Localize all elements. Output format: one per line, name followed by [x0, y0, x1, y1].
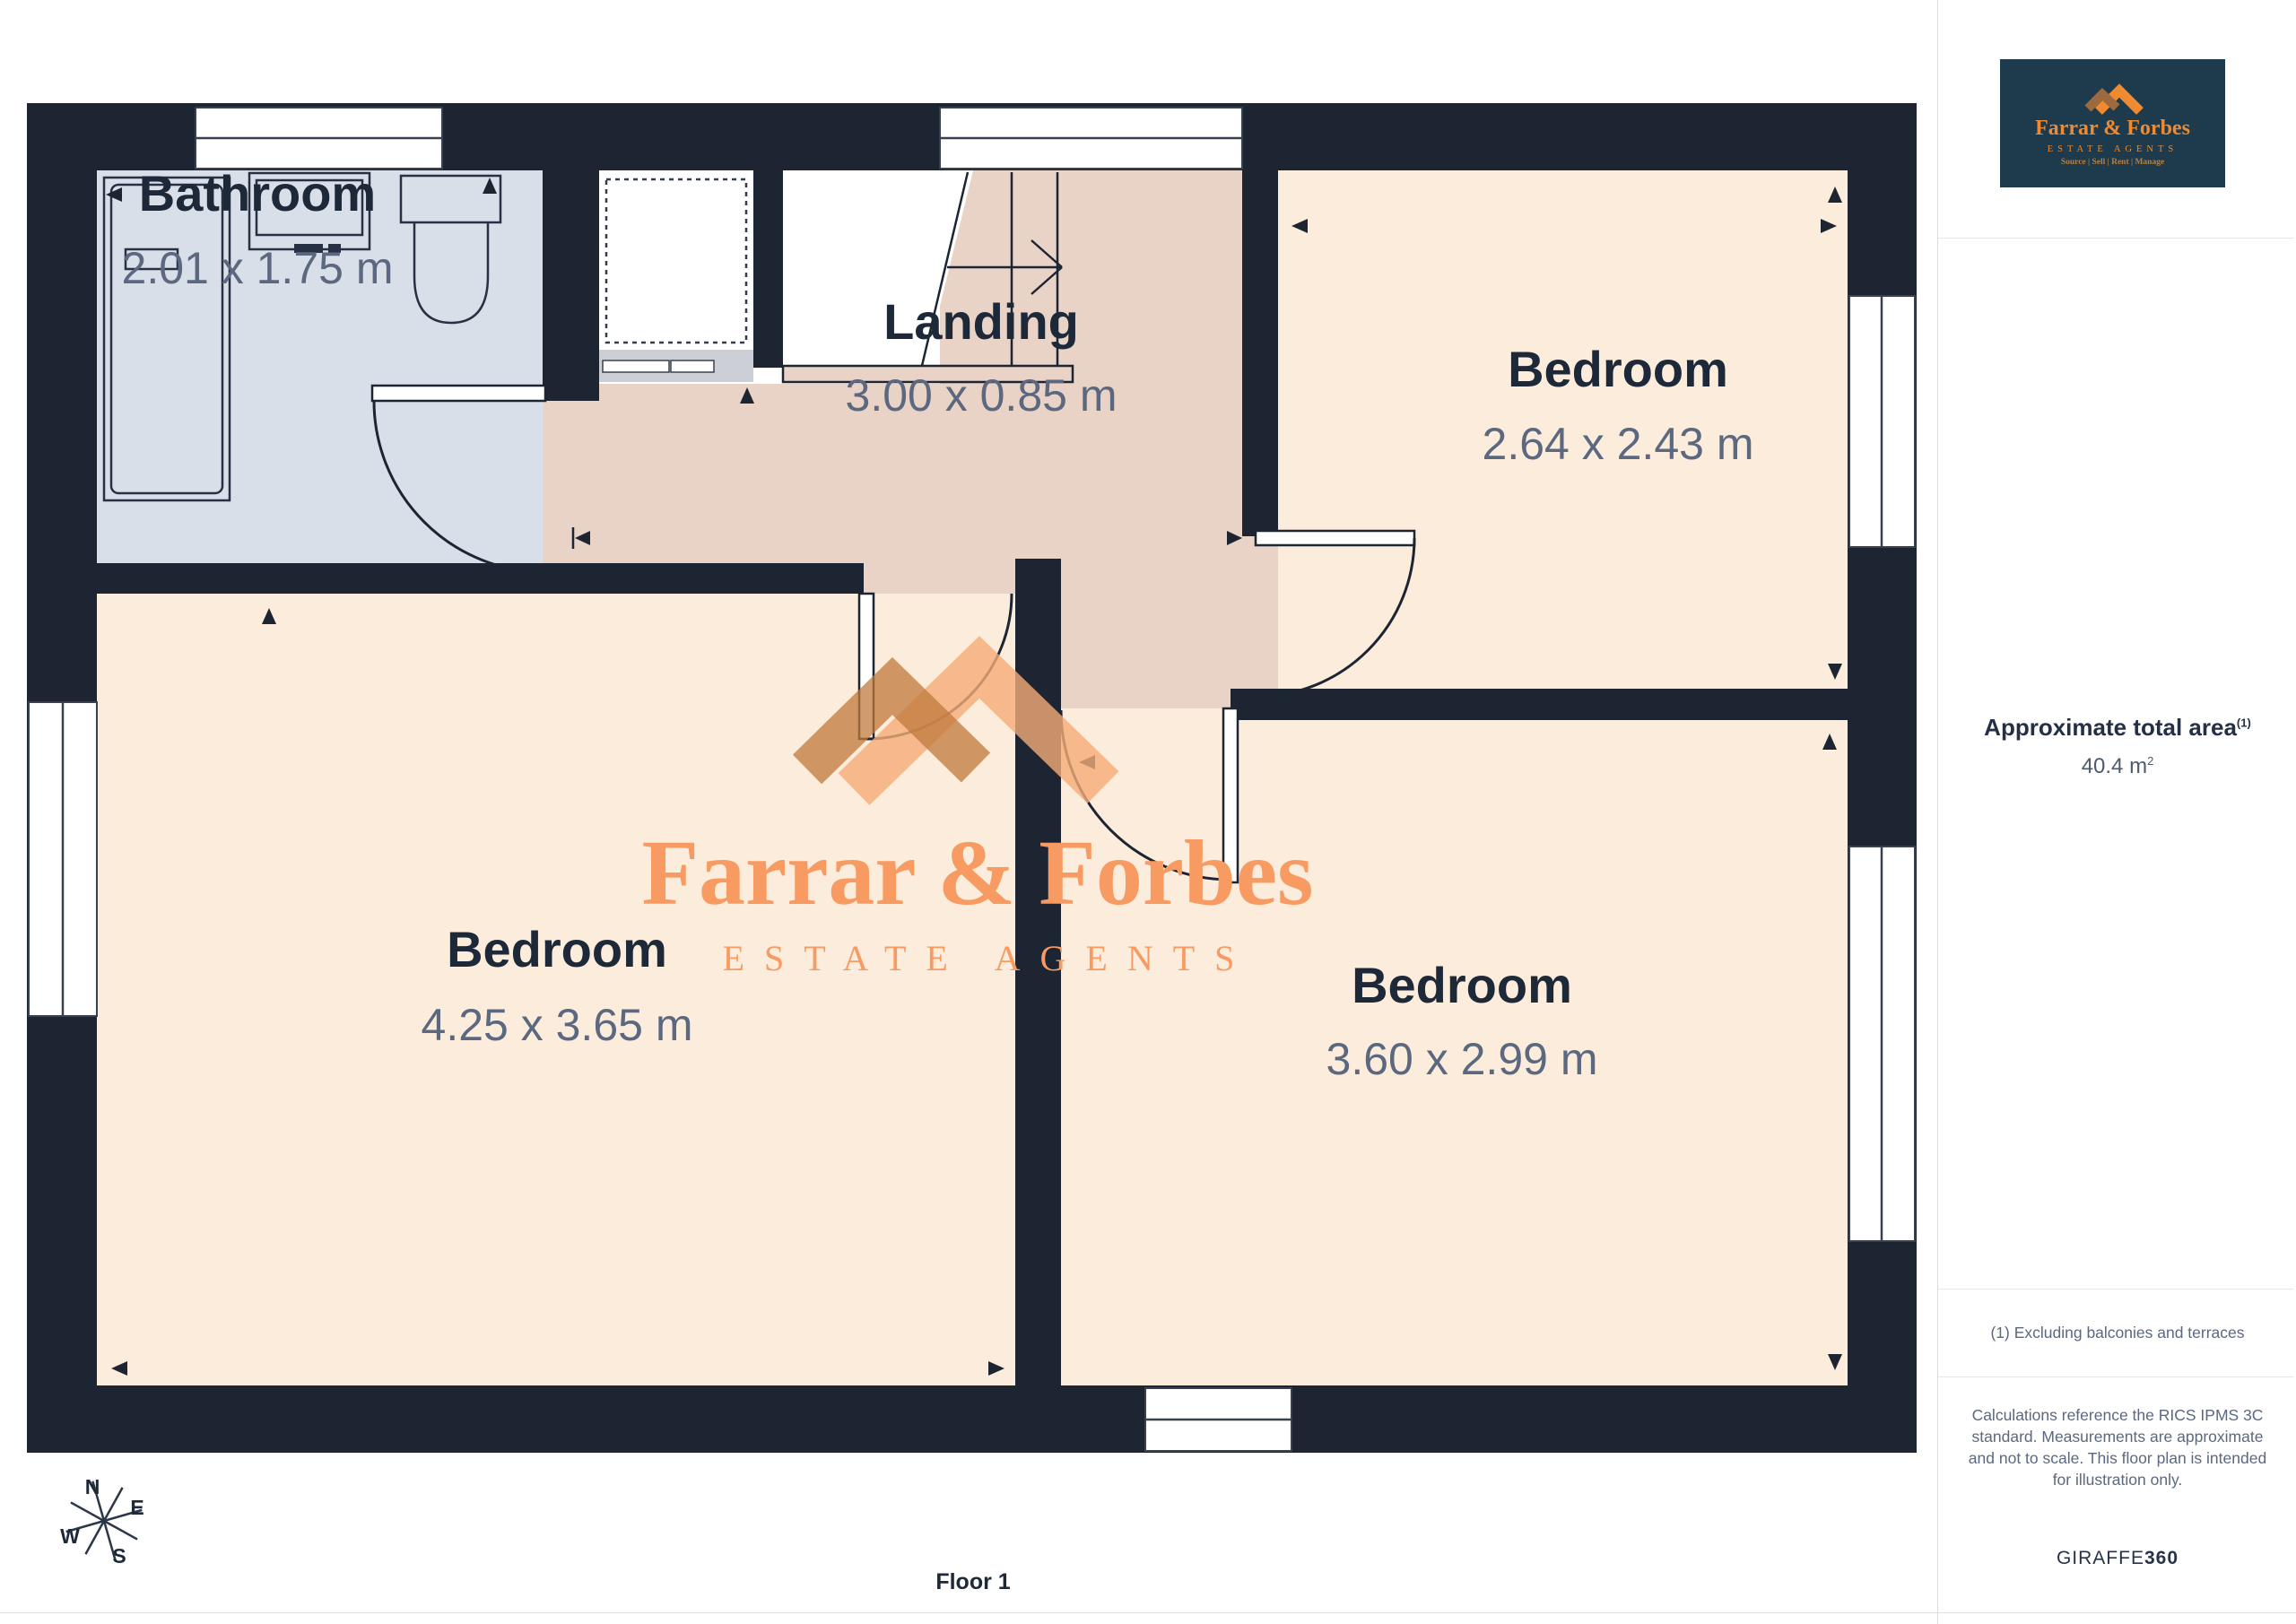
sidebar-divider	[1938, 1289, 2293, 1290]
info-sidebar: Farrar & Forbes ESTATE AGENTS Source | S…	[1937, 0, 2296, 1624]
disclaimer-text: Calculations reference the RICS IPMS 3C …	[1965, 1404, 2270, 1490]
logo-title: Farrar & Forbes	[2035, 117, 2190, 141]
room-dimensions: 3.00 x 0.85 m	[846, 370, 1118, 421]
cupboard-slider-right	[671, 360, 714, 372]
sidebar-divider	[1938, 1376, 2293, 1377]
watermark-subtitle: ESTATE AGENTS	[723, 938, 1255, 978]
door-leaf	[372, 386, 545, 401]
compass-rose: N E W S	[55, 1471, 153, 1572]
room-dimensions: 3.60 x 2.99 m	[1326, 1034, 1598, 1084]
bathroom-door-threshold	[543, 401, 599, 563]
sidebar-divider	[1938, 238, 2293, 239]
floor-plan: Bathroom 2.01 x 1.75 m Landing 3.00 x 0.…	[0, 0, 1937, 1624]
wall-bottom	[27, 1385, 1917, 1453]
agency-logo-card: Farrar & Forbes ESTATE AGENTS Source | S…	[2000, 59, 2225, 187]
compass-north: N	[85, 1475, 100, 1498]
room-name: Landing	[883, 293, 1079, 350]
landing-arm-floor	[1061, 594, 1242, 708]
logo-tagline: Source | Sell | Rent | Manage	[2061, 158, 2164, 167]
logo-subtitle: ESTATE AGENTS	[2048, 144, 2179, 154]
logo-roof-icon	[2077, 81, 2149, 115]
wall-bedroom-tr-left	[1242, 170, 1278, 536]
room-dimensions: 2.01 x 1.75 m	[122, 243, 394, 293]
bedroom-door-threshold	[1242, 536, 1278, 689]
cupboard-slider-left	[603, 360, 669, 372]
room-name: Bathroom	[139, 165, 376, 221]
floor-title: Floor 1	[935, 1569, 1010, 1594]
total-area-block: Approximate total area(1) 40.4 m2	[1938, 714, 2296, 779]
wall-bathroom-right	[543, 170, 599, 401]
total-area-title: Approximate total area(1)	[1938, 714, 2296, 742]
giraffe360-brand: GIRAFFE360	[1938, 1548, 2296, 1569]
floorplan-page: Bathroom 2.01 x 1.75 m Landing 3.00 x 0.…	[0, 0, 2296, 1624]
room-name: Bedroom	[1508, 341, 1728, 397]
page-bottom-border	[0, 1612, 2296, 1613]
door-leaf	[1256, 531, 1414, 545]
cupboard-body	[599, 172, 753, 350]
room-dimensions: 2.64 x 2.43 m	[1483, 419, 1754, 469]
compass-south: S	[112, 1544, 126, 1568]
bathroom-floor	[97, 170, 543, 563]
total-area-value: 40.4 m2	[1938, 754, 2296, 779]
room-name: Bedroom	[447, 921, 667, 977]
wall-stair-divider	[753, 170, 783, 368]
compass-east: E	[130, 1496, 143, 1519]
room-dimensions: 4.25 x 3.65 m	[422, 1000, 693, 1050]
cupboard	[599, 172, 753, 382]
wall-right-rooms-divider	[1231, 689, 1848, 720]
watermark-title: Farrar & Forbes	[642, 821, 1314, 925]
compass-west: W	[60, 1524, 80, 1548]
stairs-floor	[940, 170, 1242, 386]
room-name: Bedroom	[1352, 957, 1572, 1013]
area-footnote: (1) Excluding balconies and terraces	[1956, 1324, 2279, 1342]
